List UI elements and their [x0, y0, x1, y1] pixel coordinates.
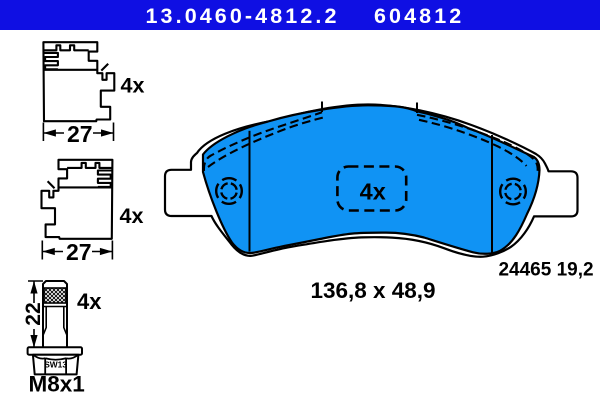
svg-text:604812: 604812	[374, 4, 464, 28]
svg-text:24465 19,2: 24465 19,2	[498, 260, 593, 281]
svg-text:13.0460-4812.2: 13.0460-4812.2	[146, 4, 340, 28]
svg-text:4x: 4x	[77, 289, 102, 314]
svg-text:4x: 4x	[121, 74, 145, 98]
svg-text:27: 27	[66, 239, 92, 265]
svg-text:27: 27	[67, 121, 93, 147]
svg-text:M8x1: M8x1	[29, 372, 85, 397]
svg-text:4x: 4x	[360, 179, 386, 205]
svg-text:SW13: SW13	[44, 360, 67, 370]
svg-text:4x: 4x	[120, 204, 144, 228]
svg-text:22: 22	[22, 302, 45, 325]
svg-text:136,8 x 48,9: 136,8 x 48,9	[310, 278, 435, 303]
